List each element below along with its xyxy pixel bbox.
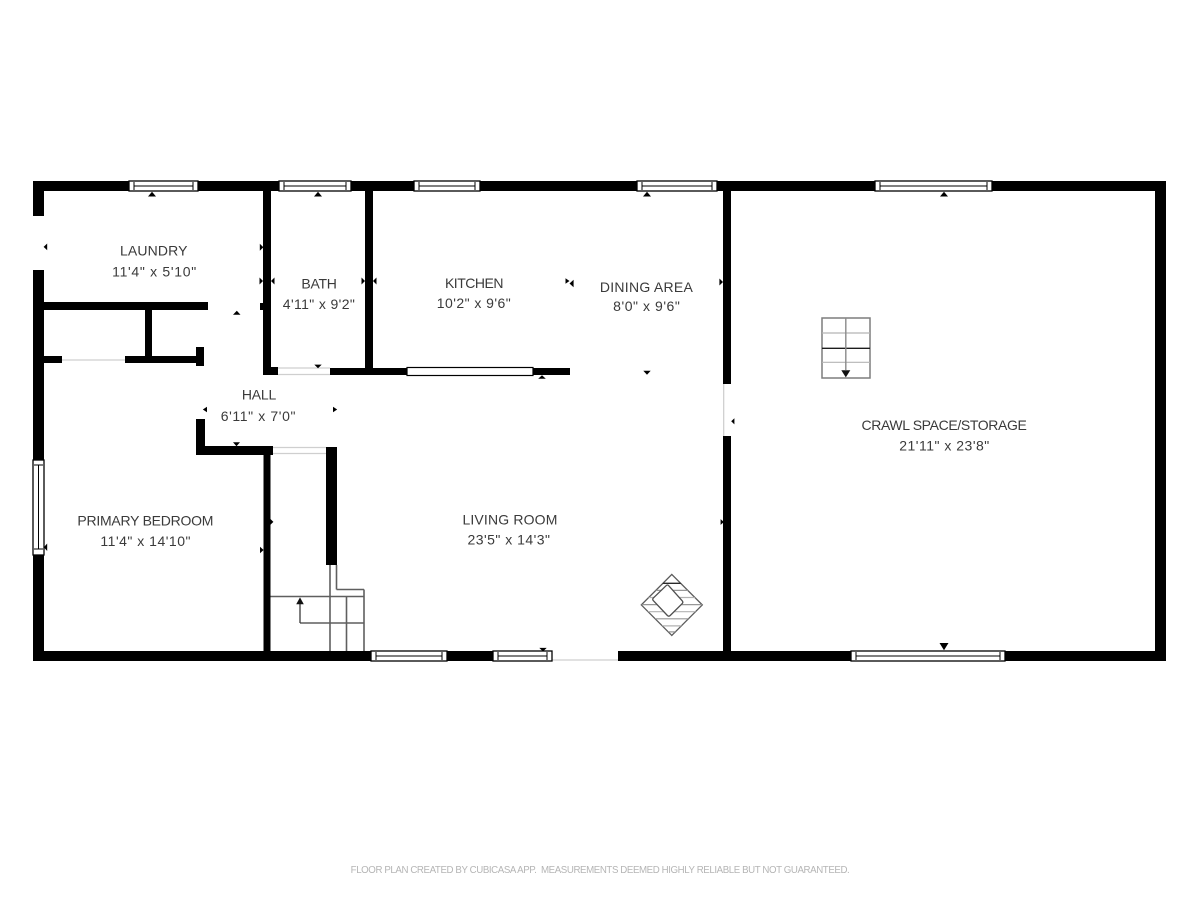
svg-text:8'0" x 9'6": 8'0" x 9'6" xyxy=(613,298,680,314)
svg-text:11'4" x 5'10": 11'4" x 5'10" xyxy=(112,264,197,280)
svg-text:DINING AREA: DINING AREA xyxy=(600,279,694,295)
svg-text:LIVING ROOM: LIVING ROOM xyxy=(462,511,557,527)
svg-text:KITCHEN: KITCHEN xyxy=(445,275,503,291)
svg-text:PRIMARY BEDROOM: PRIMARY BEDROOM xyxy=(77,513,213,529)
svg-text:LAUNDRY: LAUNDRY xyxy=(120,243,188,259)
svg-text:BATH: BATH xyxy=(301,276,336,292)
svg-text:10'2" x 9'6": 10'2" x 9'6" xyxy=(437,295,511,311)
svg-text:11'4" x 14'10": 11'4" x 14'10" xyxy=(100,533,191,549)
svg-text:FLOOR PLAN CREATED BY CUBICASA: FLOOR PLAN CREATED BY CUBICASA APP. MEAS… xyxy=(351,865,850,876)
svg-text:CRAWL SPACE/STORAGE: CRAWL SPACE/STORAGE xyxy=(861,417,1026,433)
svg-text:23'5" x 14'3": 23'5" x 14'3" xyxy=(467,532,550,548)
svg-text:4'11" x 9'2": 4'11" x 9'2" xyxy=(283,296,355,312)
svg-text:6'11" x 7'0": 6'11" x 7'0" xyxy=(221,408,296,424)
svg-text:21'11" x 23'8": 21'11" x 23'8" xyxy=(899,438,990,454)
svg-text:HALL: HALL xyxy=(242,387,277,403)
